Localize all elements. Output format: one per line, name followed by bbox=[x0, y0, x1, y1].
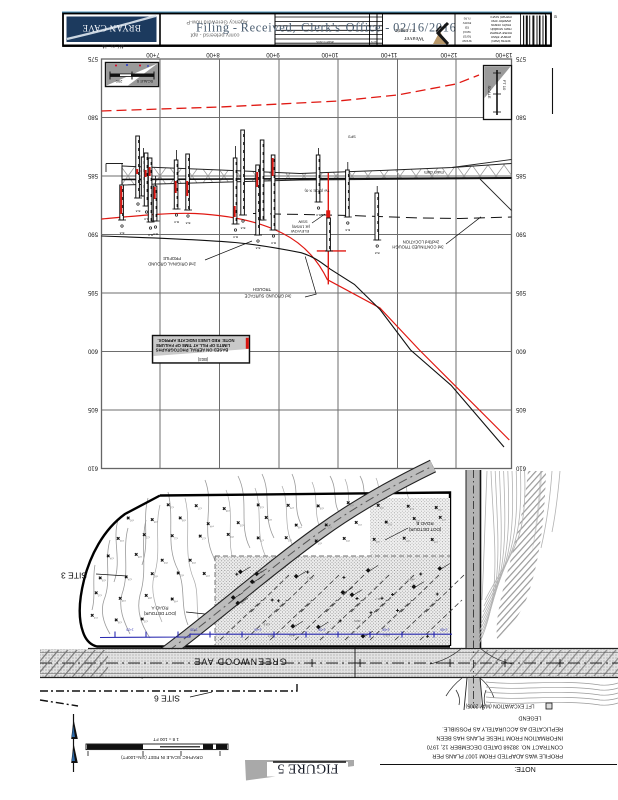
svg-text:x82: x82 bbox=[437, 508, 442, 512]
svg-text:x70: x70 bbox=[289, 506, 294, 510]
svg-text:x63: x63 bbox=[179, 574, 184, 578]
svg-text:600: 600 bbox=[87, 347, 98, 353]
svg-text:x10.4: x10.4 bbox=[257, 570, 264, 574]
svg-text:B-8: B-8 bbox=[345, 228, 350, 232]
svg-text:INFORMATION FROM THESE PLANS H: INFORMATION FROM THESE PLANS HAS BEEN bbox=[436, 735, 563, 741]
svg-text:x60: x60 bbox=[153, 574, 158, 578]
svg-text:x63: x63 bbox=[163, 561, 168, 565]
svg-text:NOTE: RED LINES INDICATE APPRO: NOTE: RED LINES INDICATE APPROX. bbox=[157, 338, 234, 343]
svg-text:Weaver: Weaver bbox=[403, 35, 424, 42]
svg-text:1 8 = 100 FT: 1 8 = 100 FT bbox=[153, 737, 179, 742]
svg-text:x85: x85 bbox=[147, 596, 152, 600]
svg-text:GREENWOOD AVE: GREENWOOD AVE bbox=[193, 657, 286, 667]
svg-text:x62: x62 bbox=[387, 523, 392, 527]
svg-text:REPLICATED AS ACCURATELY AS PO: REPLICATED AS ACCURATELY AS POSSIBLE. bbox=[442, 726, 563, 732]
svg-text:x35: x35 bbox=[153, 520, 158, 524]
svg-text:(DOT DETOUR): (DOT DETOUR) bbox=[143, 611, 176, 616]
svg-text:SP3: SP3 bbox=[347, 135, 355, 140]
svg-text:SITE 6: SITE 6 bbox=[154, 694, 180, 704]
svg-text:x26: x26 bbox=[137, 555, 142, 559]
svg-text:wnsrvr elvsn: wnsrvr elvsn bbox=[491, 35, 511, 39]
svg-text:x81: x81 bbox=[345, 539, 350, 543]
svg-text:LIMITS OF FILL AT TIME OF FAIL: LIMITS OF FILL AT TIME OF FAILURE bbox=[156, 343, 230, 348]
svg-text:x32: x32 bbox=[287, 538, 292, 542]
svg-text:SCALE: SCALE bbox=[487, 85, 492, 98]
svg-text:rsi: rsi bbox=[465, 25, 469, 30]
svg-text:x37: x37 bbox=[205, 574, 210, 578]
svg-text:x10: x10 bbox=[169, 505, 174, 509]
svg-text:ROAD A: ROAD A bbox=[151, 606, 168, 611]
svg-text:595: 595 bbox=[87, 289, 98, 295]
svg-text:x41: x41 bbox=[119, 539, 124, 543]
svg-text:x48: x48 bbox=[173, 600, 178, 604]
svg-text:x97: x97 bbox=[317, 542, 322, 546]
svg-text:x49: x49 bbox=[297, 526, 302, 530]
svg-text:610: 610 bbox=[515, 464, 526, 470]
svg-text:(B03): (B03) bbox=[197, 357, 208, 362]
svg-text:merwnl scvro: merwnl scvro bbox=[490, 15, 511, 19]
svg-text:3rd GROUND SURFACE: 3rd GROUND SURFACE bbox=[244, 294, 291, 299]
svg-text:B-8: B-8 bbox=[174, 220, 179, 224]
svg-text:LFT EXCAVATION (MAY 2005): LFT EXCAVATION (MAY 2005) bbox=[465, 702, 534, 708]
svg-text:1+40: 1+40 bbox=[254, 627, 261, 631]
svg-text:GRAPHIC SCALE IN FEET (1IN=100: GRAPHIC SCALE IN FEET (1IN=100FT) bbox=[121, 755, 203, 760]
svg-text:(at 10/9/8): (at 10/9/8) bbox=[291, 225, 310, 230]
svg-text:x19: x19 bbox=[409, 507, 414, 511]
svg-text:so s: so s bbox=[371, 40, 377, 44]
svg-text:x37: x37 bbox=[197, 506, 202, 510]
svg-text:1+20: 1+20 bbox=[126, 627, 133, 631]
svg-text:x92: x92 bbox=[191, 561, 196, 565]
svg-text:Filing-Received,Clerk'sOffice-: Filing-Received,Clerk'sOffice-02/16/2016 bbox=[196, 21, 457, 35]
svg-text:575: 575 bbox=[515, 55, 526, 61]
svg-text:ecnv: ecnv bbox=[463, 21, 471, 26]
svg-text:x69: x69 bbox=[229, 535, 234, 539]
svg-text:x10: x10 bbox=[97, 593, 102, 597]
svg-text:ROAD B: ROAD B bbox=[416, 521, 433, 526]
svg-text:x44: x44 bbox=[209, 524, 214, 528]
svg-text:9+00: 9+00 bbox=[266, 51, 280, 57]
svg-text:tersl: tersl bbox=[463, 34, 471, 39]
svg-text:B-8: B-8 bbox=[240, 226, 245, 230]
svg-text:x34: x34 bbox=[375, 540, 380, 544]
svg-text:585: 585 bbox=[87, 172, 98, 178]
svg-text:x90: x90 bbox=[129, 519, 134, 523]
svg-text:x16: x16 bbox=[259, 506, 264, 510]
svg-text:605: 605 bbox=[87, 406, 98, 412]
svg-text:595: 595 bbox=[515, 289, 526, 295]
svg-text:NOTE:: NOTE: bbox=[514, 765, 535, 772]
svg-text:B-8: B-8 bbox=[185, 221, 190, 225]
svg-text:x72: x72 bbox=[259, 539, 264, 543]
svg-text:PROFILE WAS ADAPTED FROM 1007: PROFILE WAS ADAPTED FROM 1007 PLANS PER bbox=[432, 753, 563, 759]
svg-text:ELEV/GW: ELEV/GW bbox=[291, 229, 309, 234]
svg-text:B-8: B-8 bbox=[148, 233, 153, 237]
svg-text:2nd/3rd LOCATION: 2nd/3rd LOCATION bbox=[403, 240, 439, 245]
svg-text:x24: x24 bbox=[127, 578, 132, 582]
svg-text:x25.1: x25.1 bbox=[238, 601, 245, 605]
svg-text:590: 590 bbox=[515, 230, 526, 236]
svg-text:BRYAN CAVE: BRYAN CAVE bbox=[82, 23, 141, 33]
svg-text:SCALE 0: SCALE 0 bbox=[136, 79, 153, 84]
svg-text:TROUGH: TROUGH bbox=[253, 287, 271, 292]
svg-text:BASED ON AERIAL PHOTOGRAPHS: BASED ON AERIAL PHOTOGRAPHS bbox=[156, 348, 229, 353]
svg-text:x27: x27 bbox=[441, 518, 446, 522]
svg-text:srenw lvwrd: srenw lvwrd bbox=[492, 39, 511, 43]
svg-text:1+60: 1+60 bbox=[382, 627, 389, 631]
svg-text:aswrn osvs: aswrn osvs bbox=[316, 40, 334, 44]
svg-text:B-8: B-8 bbox=[119, 231, 124, 235]
svg-text:10+00: 10+00 bbox=[321, 51, 339, 57]
svg-text:B-8: B-8 bbox=[255, 246, 260, 250]
svg-text:B-8: B-8 bbox=[316, 213, 321, 217]
svg-text:snow: snow bbox=[462, 39, 471, 44]
svg-text:x33: x33 bbox=[143, 620, 148, 624]
svg-text:250: 250 bbox=[115, 79, 122, 84]
svg-text:600: 600 bbox=[515, 347, 526, 353]
svg-text:x18.8: x18.8 bbox=[263, 623, 270, 627]
svg-text:B-8: B-8 bbox=[233, 235, 238, 239]
svg-text:x44: x44 bbox=[121, 599, 126, 603]
svg-text:x58: x58 bbox=[319, 507, 324, 511]
svg-text:x40.4: x40.4 bbox=[408, 578, 415, 582]
svg-text:wod: wod bbox=[463, 30, 470, 35]
svg-text:erulrv vxsnw: erulrv vxsnw bbox=[491, 23, 511, 27]
svg-text:wvsetnr xrsv: wvsetnr xrsv bbox=[491, 19, 511, 23]
svg-text:x34: x34 bbox=[109, 557, 114, 561]
svg-text:FIGURE 5: FIGURE 5 bbox=[277, 761, 338, 776]
svg-text:1+30: 1+30 bbox=[190, 627, 197, 631]
svg-text:610: 610 bbox=[87, 464, 98, 470]
svg-text:x36: x36 bbox=[117, 621, 122, 625]
svg-text:s.r.osgriz: s.r.osgriz bbox=[395, 27, 416, 33]
svg-text:x12: x12 bbox=[93, 616, 98, 620]
svg-text:n.re: n.re bbox=[463, 16, 471, 21]
svg-text:(DOT DETOUR): (DOT DETOUR) bbox=[408, 527, 441, 532]
svg-text:nwrv srvalidn: nwrv srvalidn bbox=[491, 27, 512, 31]
svg-text:x22: x22 bbox=[145, 535, 150, 539]
svg-text:11+00: 11+00 bbox=[380, 51, 397, 57]
svg-text:FT 10: FT 10 bbox=[502, 80, 507, 91]
svg-text:mxrse vnwesr: mxrse vnwesr bbox=[489, 31, 512, 35]
svg-text:2nd ORIGINAL GROUND: 2nd ORIGINAL GROUND bbox=[148, 262, 196, 267]
svg-text:1+60: 1+60 bbox=[440, 627, 447, 631]
svg-text:B-8: B-8 bbox=[271, 241, 276, 245]
svg-text:12+00: 12+00 bbox=[440, 51, 458, 57]
svg-text:SITE 3: SITE 3 bbox=[61, 571, 87, 581]
svg-text:575: 575 bbox=[87, 55, 98, 61]
svg-text:3rd CONTINUED TROUGH: 3rd CONTINUED TROUGH bbox=[392, 245, 443, 250]
svg-text:7+00: 7+00 bbox=[146, 51, 160, 57]
svg-text:AV .rv ..IA: AV .rv ..IA bbox=[101, 43, 124, 49]
svg-text:B-8: B-8 bbox=[135, 209, 140, 213]
svg-text:605: 605 bbox=[515, 406, 526, 412]
svg-text:590: 590 bbox=[87, 230, 98, 236]
svg-text:PROFILE: PROFILE bbox=[163, 256, 181, 261]
svg-text:LEGEND: LEGEND bbox=[518, 715, 541, 721]
svg-text:x67: x67 bbox=[405, 539, 410, 543]
svg-text:SSW: SSW bbox=[298, 220, 307, 225]
svg-text:580: 580 bbox=[515, 113, 526, 119]
svg-text:13+00: 13+00 bbox=[495, 51, 513, 57]
svg-text:main dam: main dam bbox=[424, 170, 444, 175]
svg-text:585: 585 bbox=[515, 172, 526, 178]
svg-text:x52: x52 bbox=[327, 526, 332, 530]
svg-text:580: 580 bbox=[87, 113, 98, 119]
svg-text:x11: x11 bbox=[173, 536, 178, 540]
svg-text:B-8: B-8 bbox=[153, 232, 158, 236]
svg-text:x53: x53 bbox=[239, 523, 244, 527]
svg-text:1+50: 1+50 bbox=[318, 627, 325, 631]
svg-text:B-8: B-8 bbox=[375, 251, 380, 255]
svg-text:x75: x75 bbox=[433, 540, 438, 544]
svg-text:x11: x11 bbox=[357, 523, 362, 527]
svg-text:x21: x21 bbox=[267, 518, 272, 522]
svg-text:Tw (DOE X-9): Tw (DOE X-9) bbox=[304, 189, 330, 194]
svg-text:x21.7: x21.7 bbox=[375, 597, 382, 601]
svg-text:a: a bbox=[554, 14, 557, 20]
svg-text:x36: x36 bbox=[225, 509, 230, 513]
svg-text:x60.9: x60.9 bbox=[354, 619, 361, 623]
svg-text:x63: x63 bbox=[379, 506, 384, 510]
svg-text:x17: x17 bbox=[201, 537, 206, 541]
svg-text:x25.1: x25.1 bbox=[306, 577, 313, 581]
svg-text:8+00: 8+00 bbox=[206, 51, 220, 57]
svg-text:x59: x59 bbox=[101, 579, 106, 583]
svg-text:x96: x96 bbox=[181, 519, 186, 523]
svg-text:CONTRACT NO. 38268 DATED DECEM: CONTRACT NO. 38268 DATED DECEMBER 12, 19… bbox=[427, 744, 563, 750]
svg-text:x60: x60 bbox=[349, 503, 354, 507]
